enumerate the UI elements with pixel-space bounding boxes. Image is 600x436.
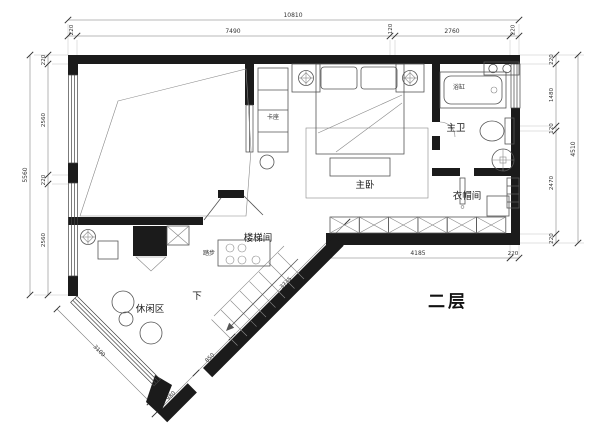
window-left-upper <box>69 75 78 163</box>
wall-leisure-north <box>68 217 203 225</box>
dim-top-seg-0: 220 <box>69 24 75 35</box>
dim-diagleft-seg-0: 3100 <box>92 344 107 359</box>
dim-top-seg-3: 2760 <box>444 28 459 35</box>
bathtub <box>440 72 506 108</box>
dim-top-total: 10810 <box>283 12 302 19</box>
wall-right <box>511 108 520 245</box>
room-label-master-bedroom: 主卧 <box>355 179 375 191</box>
round-pouf <box>112 291 134 313</box>
floor-plan-page: 10810 220 7490 120 2760 220 5560 220 256… <box>0 0 600 436</box>
washbasin <box>492 149 514 171</box>
toilet <box>480 118 514 144</box>
label-bathtub: 浴缸 <box>453 83 465 91</box>
dim-left-seg-1: 2560 <box>41 112 47 127</box>
lamp-icon <box>299 71 314 86</box>
dim-right-seg-3: 2470 <box>549 175 555 190</box>
window-left-lower <box>69 183 78 276</box>
booth-seat-cabinet <box>258 68 288 152</box>
sink-bowl-icon <box>489 64 497 72</box>
wall-bottom-right <box>326 233 520 245</box>
round-pouf <box>140 322 162 344</box>
pillow <box>361 67 397 89</box>
dim-left-seg-3: 2560 <box>41 232 47 247</box>
wall-stair-diagonal <box>203 236 344 377</box>
room-label-leisure-area: 休闲区 <box>136 303 165 315</box>
dim-top-seg-1: 7490 <box>225 28 240 35</box>
pillow <box>321 67 357 89</box>
dimension-right: 220 1480 120 2470 220 4510 <box>549 52 581 246</box>
wall-left-pier-2 <box>68 163 78 183</box>
dim-left-total: 5560 <box>22 167 29 182</box>
dim-left-seg-0: 220 <box>41 54 47 65</box>
label-steps: 踏步 <box>203 249 215 257</box>
dimension-extension-lines <box>34 24 584 295</box>
lamp-icon <box>403 71 418 86</box>
closet-cabinet <box>487 196 509 216</box>
floor-title: 二层 <box>428 292 468 312</box>
dim-right-seg-1: 1480 <box>549 87 555 102</box>
door-leaf-stair <box>204 198 221 220</box>
wall-left-pier-3 <box>68 276 78 296</box>
label-booth-seat: 卡座 <box>267 113 279 121</box>
corner-shelf <box>136 257 166 271</box>
side-table <box>98 241 118 259</box>
sink-bowl-icon <box>503 64 511 72</box>
wardrobe-row <box>330 217 506 233</box>
room-label-cloakroom: 衣帽间 <box>453 190 482 202</box>
drain-icon <box>491 87 497 93</box>
dim-bottom-seg-0: 4185 <box>410 250 425 257</box>
floor-plan-drawing: 10810 220 7490 120 2760 220 5560 220 256… <box>0 0 600 436</box>
dimension-bottom: 4185 220 <box>327 250 522 261</box>
room-label-stairwell: 楼梯间 <box>244 232 273 244</box>
dimension-diagonal-right: 980 850 3735 <box>152 219 350 417</box>
dim-right-seg-0: 220 <box>549 54 555 65</box>
master-bedroom-furniture <box>258 64 428 198</box>
dim-right-seg-4: 220 <box>549 233 555 244</box>
dim-top-seg-2: 120 <box>388 23 394 34</box>
dim-right-total: 4510 <box>570 141 577 156</box>
doors <box>204 122 465 220</box>
bed-bench <box>330 158 390 176</box>
dim-right-seg-2: 120 <box>549 123 555 134</box>
dim-top-seg-4: 220 <box>511 24 517 35</box>
wall-bath-west <box>432 64 440 122</box>
room-label-master-bath: 主卫 <box>446 122 466 134</box>
dim-bottom-seg-1: 220 <box>508 251 519 257</box>
leisure-area-furniture <box>81 226 190 344</box>
wall-bath-closet-1 <box>432 168 460 176</box>
corner-unit <box>167 226 189 245</box>
round-pouf <box>119 312 133 326</box>
wall-bath-west-stub <box>432 136 440 150</box>
dimension-left: 5560 220 2560 220 2560 <box>22 52 51 298</box>
wall-bedroom-west <box>245 55 254 105</box>
pouf <box>260 155 274 169</box>
cloakroom-fixtures <box>330 149 519 233</box>
bed <box>316 64 404 154</box>
dimension-top: 10810 220 7490 120 2760 220 <box>65 12 522 39</box>
dimension-diagonal-left: 3100 <box>54 306 153 405</box>
wall-left-pier-1 <box>68 55 78 75</box>
tv-cabinet <box>133 226 167 256</box>
wall-top <box>68 55 520 64</box>
lamp-icon <box>81 230 96 245</box>
label-stair-down: 下 <box>192 291 202 302</box>
wall-stair-landing <box>218 190 244 198</box>
dim-left-seg-2: 220 <box>41 174 47 185</box>
door-knob-icon <box>461 206 464 209</box>
